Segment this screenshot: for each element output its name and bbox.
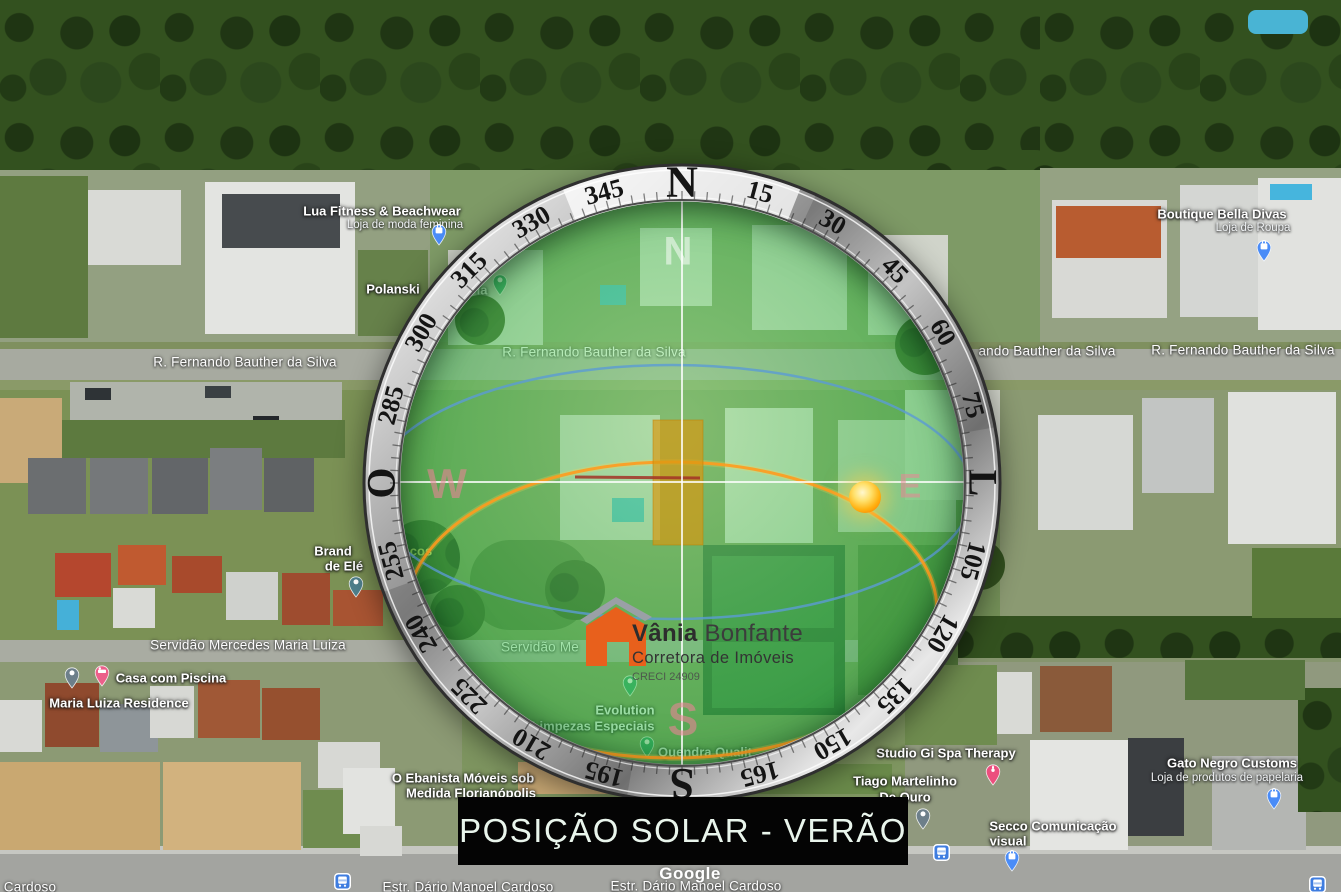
shopping-pin-icon[interactable] xyxy=(1255,237,1273,267)
logo-registration: CRECI 24909 xyxy=(632,671,803,683)
poi-label-secco-comunicacao[interactable]: Secco Comunicação xyxy=(989,819,1116,834)
bus-pin-icon[interactable] xyxy=(1309,876,1326,892)
google-watermark: Google xyxy=(659,864,721,884)
shopping-pin-icon[interactable] xyxy=(1265,785,1283,815)
shopping-pin-icon[interactable] xyxy=(1003,847,1021,877)
poi-label-boutique-bella-divas[interactable]: Loja de Roupa xyxy=(1216,222,1291,234)
logo-tagline: Corretora de Imóveis xyxy=(632,649,803,668)
poi-label-brand-eletrica[interactable]: Brand xyxy=(314,544,352,559)
compass-tick-marks xyxy=(390,191,974,775)
poi-label-maria-luiza-residence[interactable]: Maria Luiza Residence xyxy=(49,696,188,711)
title-banner: POSIÇÃO SOLAR - VERÃO xyxy=(458,797,908,865)
poi-label-boutique-bella-divas[interactable]: Boutique Bella Divas xyxy=(1157,207,1286,222)
bus-pin-icon[interactable] xyxy=(334,873,351,892)
poi-label-gato-negro-customs[interactable]: Gato Negro Customs xyxy=(1167,756,1297,771)
bus-pin-icon[interactable] xyxy=(933,844,950,866)
solar-position-map-screenshot: R. Fernando Bauther da SilvaR. Fernando … xyxy=(0,0,1341,892)
compass-ring xyxy=(352,153,1012,813)
poi-label-gato-negro-customs[interactable]: Loja de produtos de papelaria xyxy=(1151,772,1303,784)
banner-title: POSIÇÃO SOLAR - VERÃO xyxy=(459,812,907,850)
logo-name: Vânia Bonfante xyxy=(632,620,803,648)
lodging-pin-icon[interactable] xyxy=(93,662,111,692)
place-pin-icon[interactable] xyxy=(63,664,81,694)
poi-label-casa-com-piscina[interactable]: Casa com Piscina xyxy=(116,671,227,686)
realtor-logo: Vânia Bonfante Corretora de Imóveis CREC… xyxy=(574,590,656,679)
